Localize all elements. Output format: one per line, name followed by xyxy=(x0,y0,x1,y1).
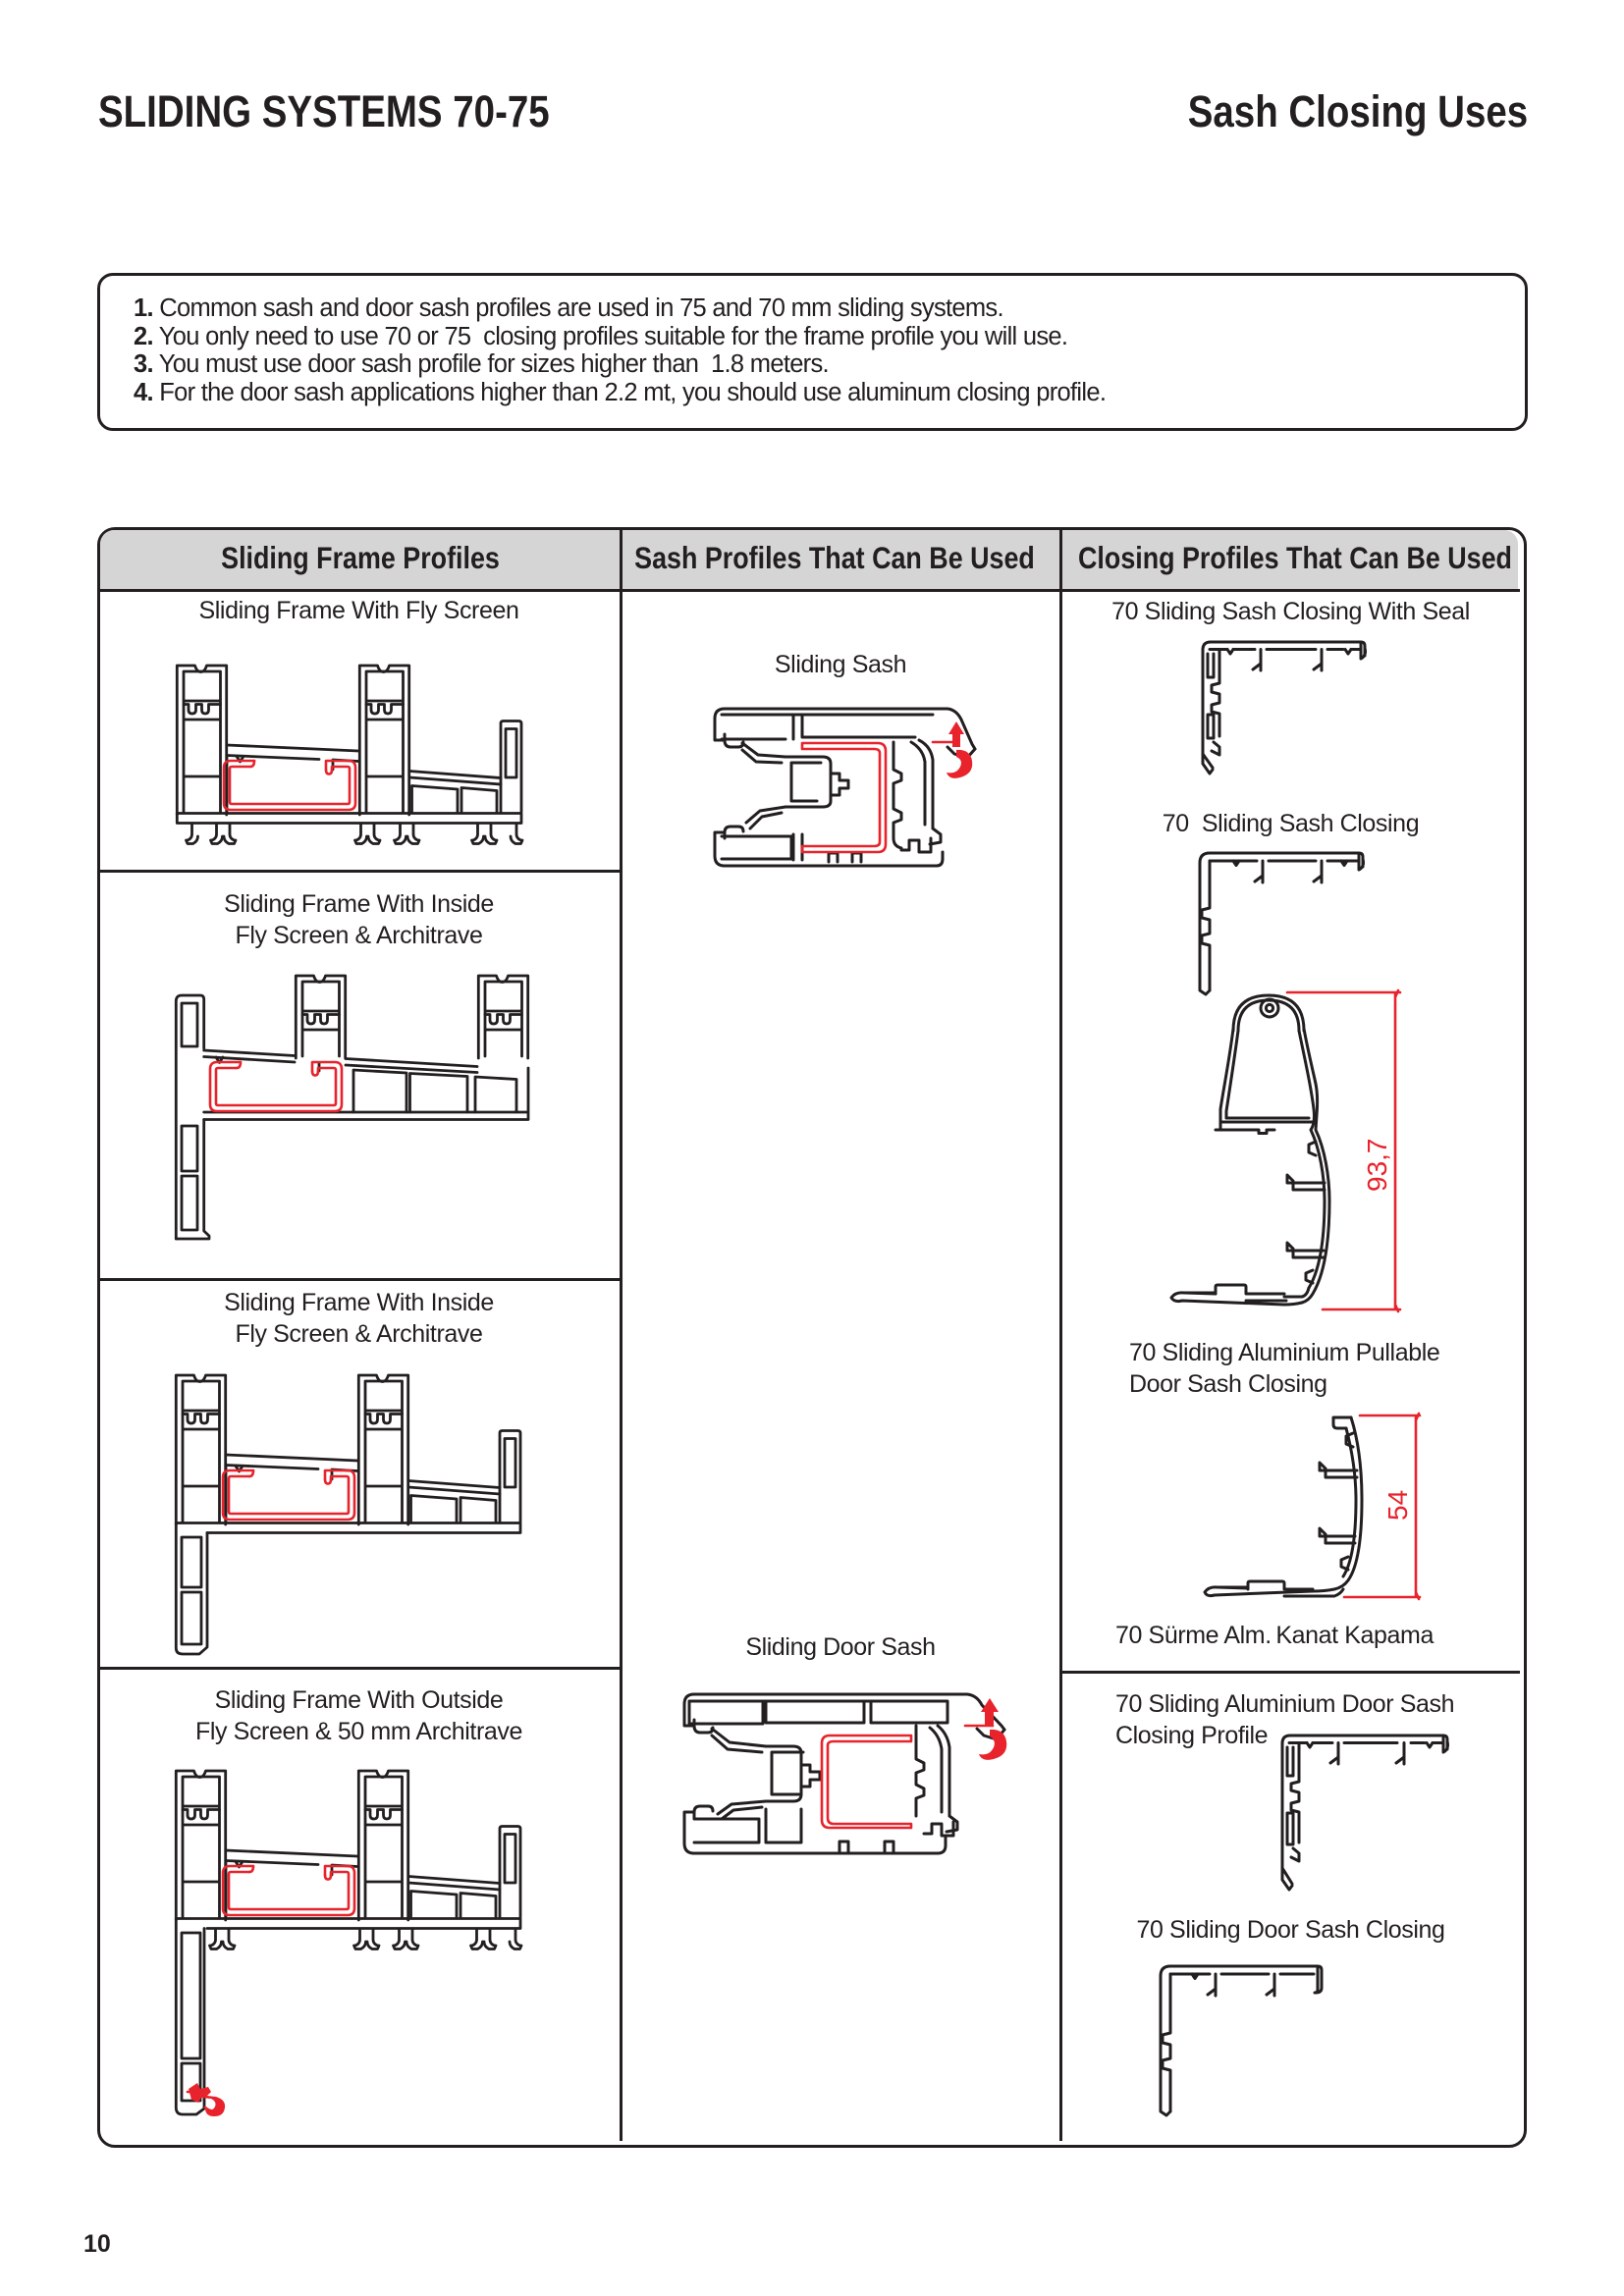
svg-text:54: 54 xyxy=(1382,1490,1413,1521)
svg-text:93,7: 93,7 xyxy=(1362,1139,1392,1193)
